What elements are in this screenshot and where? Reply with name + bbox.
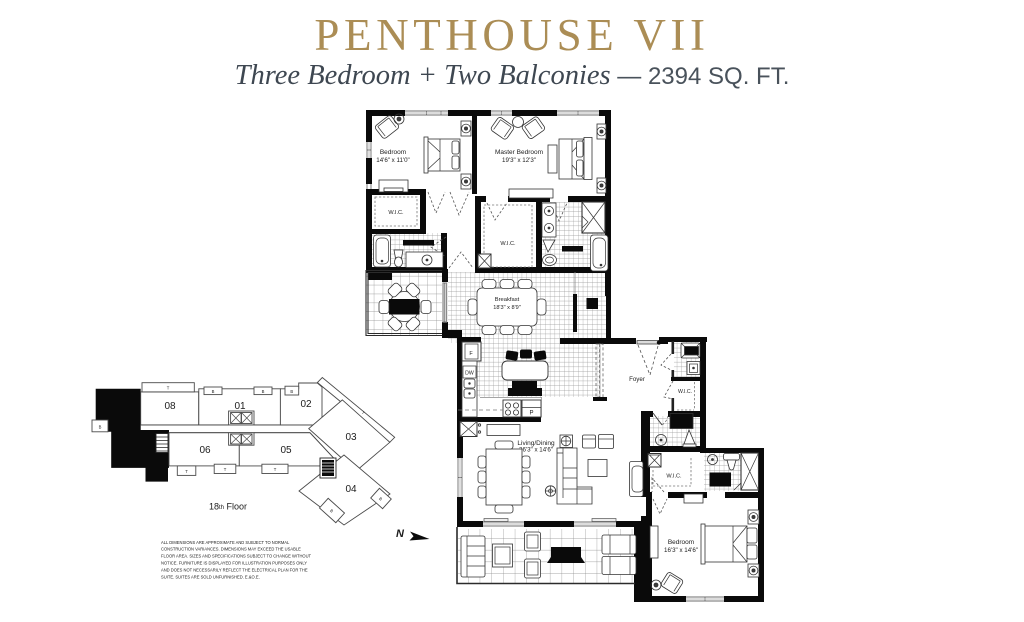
svg-text:Foyer: Foyer (629, 376, 645, 383)
svg-text:ALL DIMENSIONS ARE APPROXIMATE: ALL DIMENSIONS ARE APPROXIMATE AND SUBJE… (161, 540, 290, 545)
svg-text:N: N (396, 528, 405, 540)
svg-text:W.I.C.: W.I.C. (678, 389, 692, 395)
svg-text:AND DOES NOT NECESSARILY REFLE: AND DOES NOT NECESSARILY REFLECT THE ELE… (161, 568, 308, 573)
svg-text:19'3" x 12'3": 19'3" x 12'3" (502, 157, 536, 164)
svg-text:14'6" x 11'0": 14'6" x 11'0" (376, 157, 409, 164)
svg-text:P: P (529, 411, 533, 417)
svg-text:Master Bedroom: Master Bedroom (495, 149, 543, 156)
svg-text:T: T (224, 467, 227, 472)
svg-text:W.I.C.: W.I.C. (666, 474, 682, 480)
svg-text:Bedroom: Bedroom (380, 149, 406, 156)
svg-text:T: T (274, 467, 277, 472)
svg-text:T: T (185, 469, 188, 474)
svg-text:NOTICE. FURNITURE IS DISPLAYED: NOTICE. FURNITURE IS DISPLAYED FOR ILLUS… (161, 561, 307, 566)
svg-text:B: B (99, 425, 102, 430)
svg-text:08: 08 (164, 401, 176, 412)
svg-text:FLOOR AREA. SIZES AND SPECIFIC: FLOOR AREA. SIZES AND SPECIFICATIONS SUB… (161, 554, 312, 559)
svg-text:B: B (290, 389, 293, 394)
svg-text:26'3" x 14'6": 26'3" x 14'6" (519, 447, 553, 454)
svg-text:SUITE. SUITES ARE SOLD UNFURNI: SUITE. SUITES ARE SOLD UNFURNISHED. E.&O… (161, 575, 260, 580)
svg-text:W.I.C.: W.I.C. (388, 210, 404, 216)
svg-text:04: 04 (345, 484, 357, 495)
svg-text:18'3" x 8'9": 18'3" x 8'9" (493, 305, 521, 311)
svg-text:B: B (212, 389, 215, 394)
svg-text:CONSTRUCTION VARIANCES. DIMENS: CONSTRUCTION VARIANCES. DIMENSIONS MAY E… (161, 547, 301, 552)
svg-text:Breakfast: Breakfast (495, 297, 520, 303)
svg-text:16'3" x 14'6": 16'3" x 14'6" (664, 547, 698, 554)
svg-text:18th Floor: 18th Floor (209, 502, 247, 512)
svg-text:Bedroom: Bedroom (668, 539, 694, 546)
svg-text:T: T (167, 386, 170, 391)
svg-text:02: 02 (300, 399, 312, 410)
svg-text:03: 03 (345, 432, 357, 443)
svg-text:DW: DW (465, 371, 474, 377)
svg-text:05: 05 (280, 445, 292, 456)
svg-text:W.I.C.: W.I.C. (500, 241, 516, 247)
svg-text:06: 06 (199, 445, 211, 456)
svg-text:B: B (262, 389, 265, 394)
svg-text:01: 01 (234, 401, 246, 412)
